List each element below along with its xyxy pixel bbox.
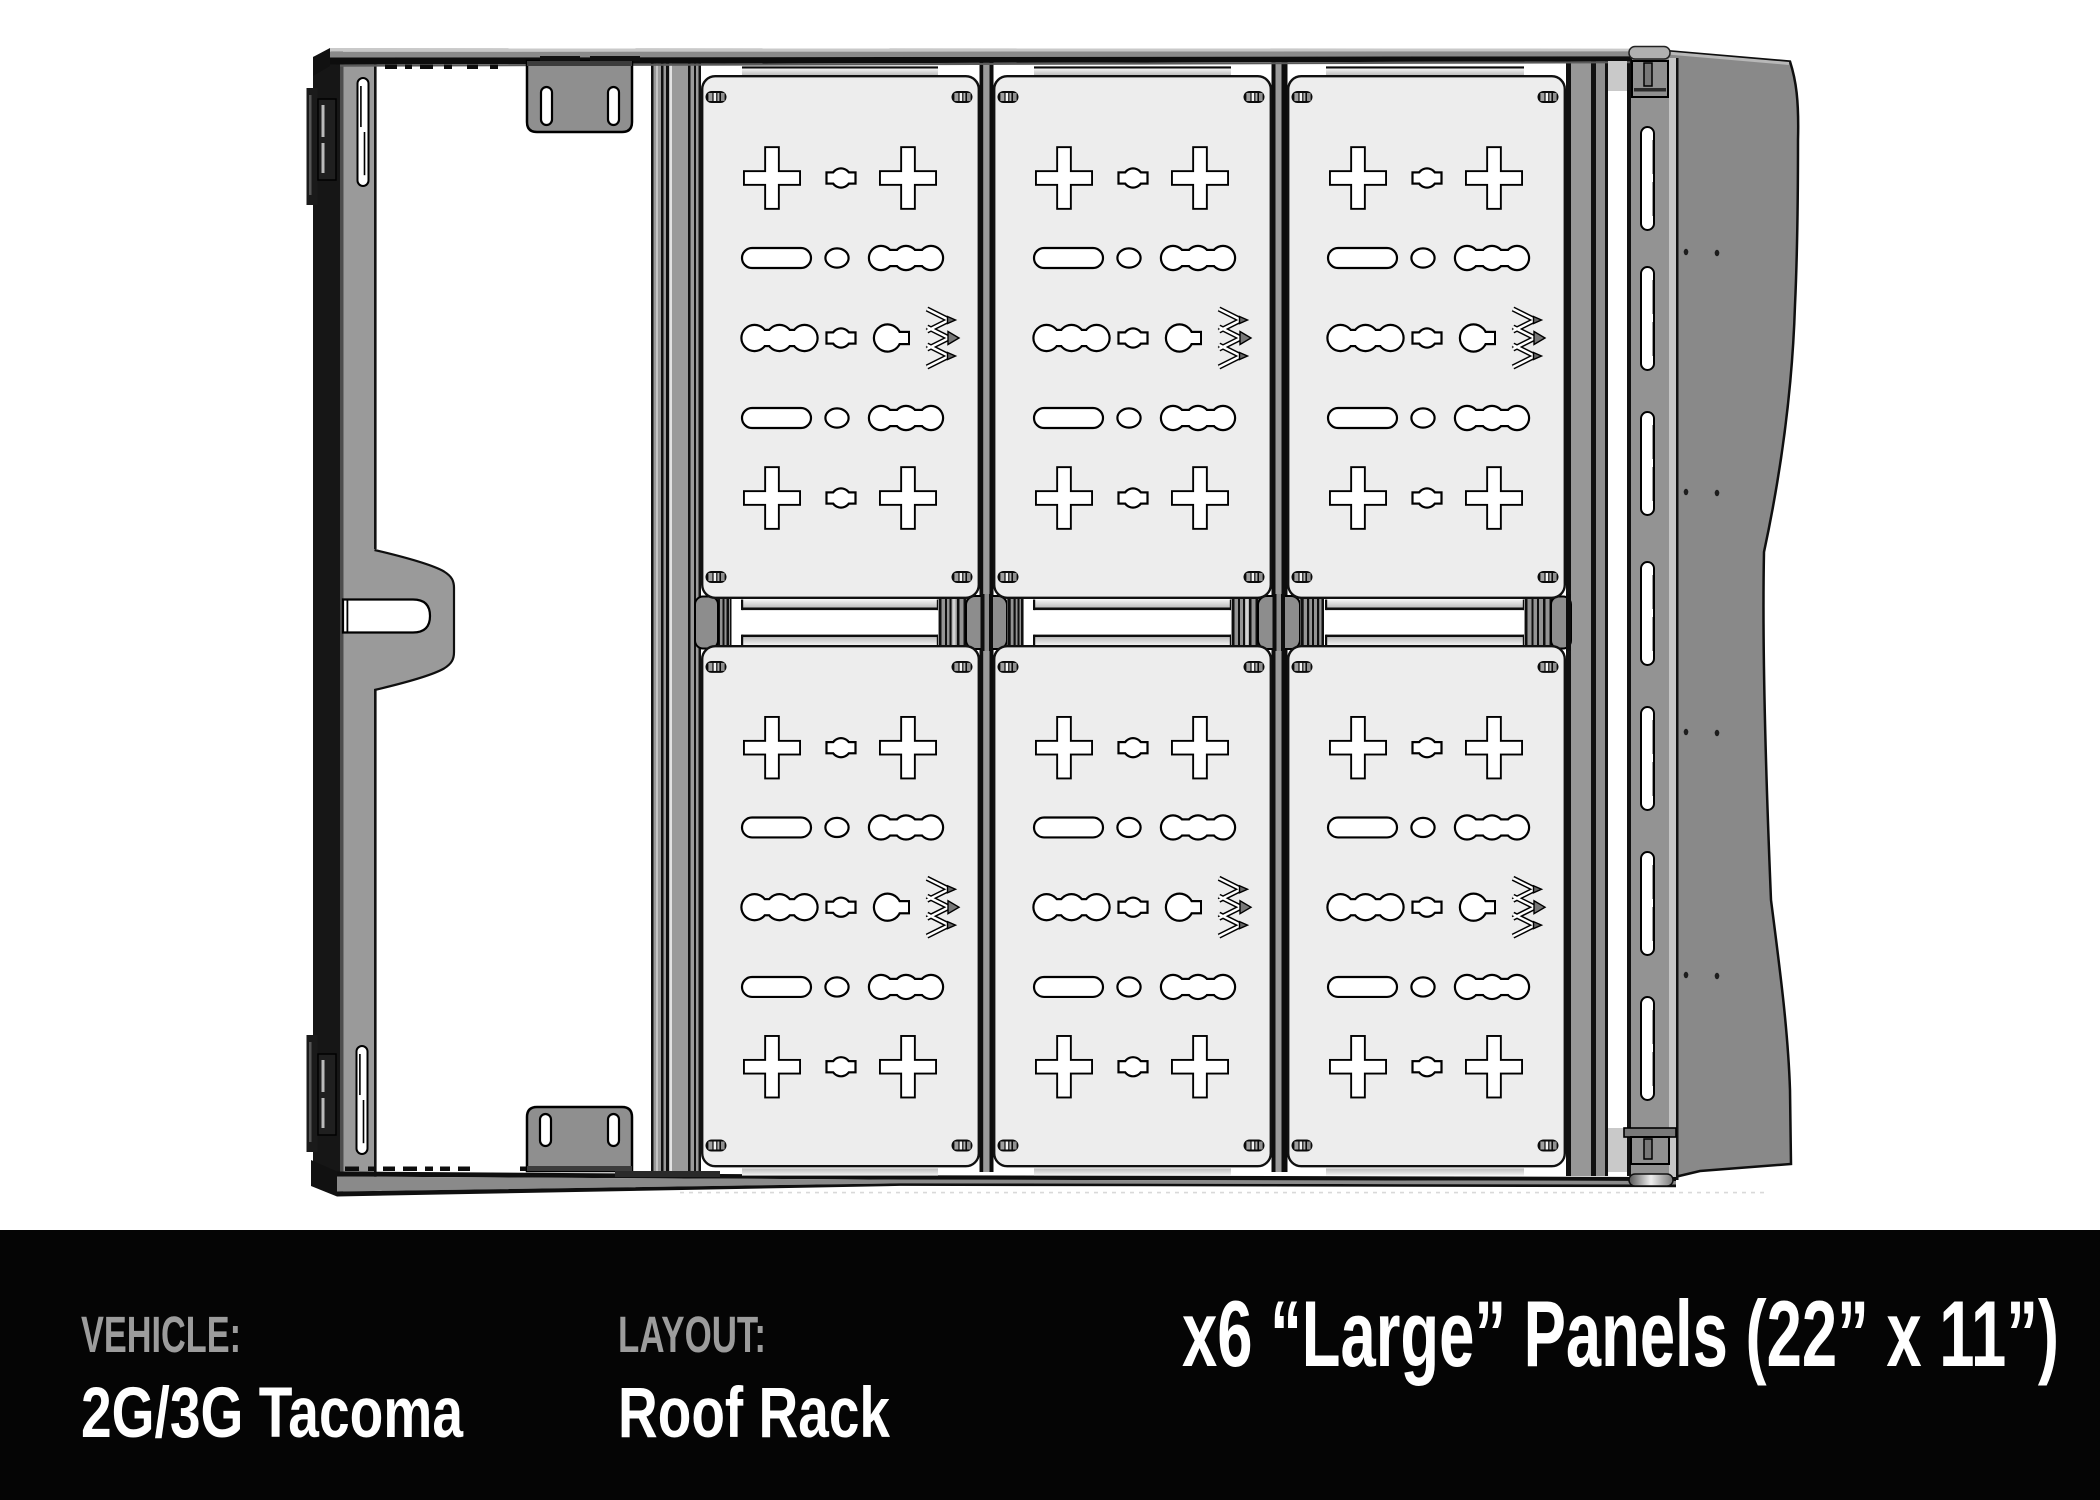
svg-text:LAYOUT:: LAYOUT: — [618, 1306, 766, 1363]
svg-text:VEHICLE:: VEHICLE: — [81, 1306, 241, 1363]
svg-text:2G/3G Tacoma: 2G/3G Tacoma — [81, 1374, 463, 1453]
svg-text:Roof Rack: Roof Rack — [618, 1374, 890, 1453]
svg-text:x6 “Large” Panels (22” x 11”): x6 “Large” Panels (22” x 11”) — [1182, 1281, 2059, 1386]
